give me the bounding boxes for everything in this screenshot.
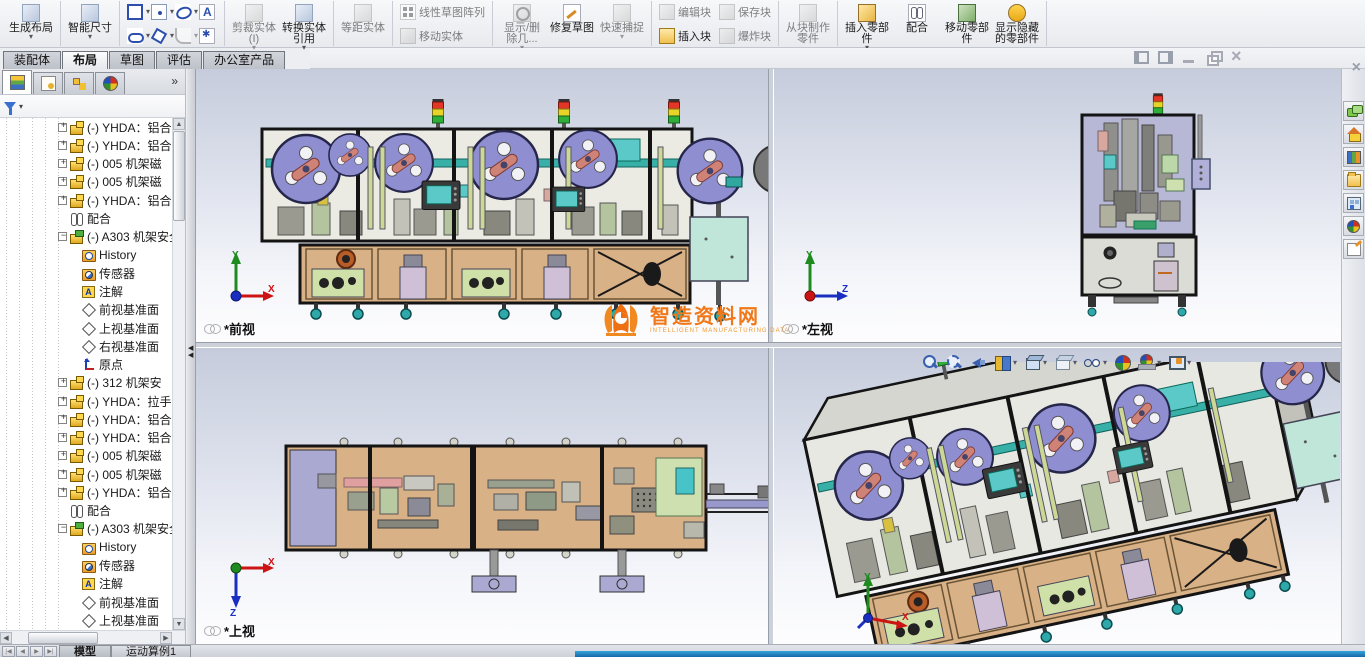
toolbar-group-make-part: 从块制作零件	[779, 1, 838, 46]
toolbar-group-dimension: 智能尺寸	[61, 1, 120, 46]
tree-item[interactable]: 传感器	[0, 264, 185, 282]
tree-item-icon	[70, 449, 84, 462]
toolbar-button[interactable]	[125, 3, 147, 21]
tree-item-label: 配合	[87, 502, 111, 519]
toolbar-button[interactable]: 从块制作零件	[784, 2, 832, 46]
toolbar-icon	[400, 4, 416, 20]
expand-toggle-icon[interactable]	[58, 524, 67, 533]
triad-front: Y X	[222, 248, 278, 310]
toolbar-icon	[199, 4, 215, 20]
toolbar-button[interactable]: 剪裁实体(I)	[230, 2, 278, 46]
scroll-right-icon[interactable]: ▶	[160, 632, 172, 644]
toolbar-icon	[1008, 4, 1026, 22]
tree-item-label: 配合	[87, 210, 111, 227]
tree-item-label: (-) 312 机架安	[87, 374, 162, 391]
collapse-arrows-icon[interactable]: ◀◀	[188, 345, 193, 359]
command-tab[interactable]: 布局	[62, 51, 108, 69]
tree-item-icon	[70, 522, 84, 535]
toolbar-group-sketch-entities	[120, 1, 225, 46]
toolbar-icon	[719, 28, 735, 44]
tree-item-icon	[82, 303, 96, 316]
tree-item-icon	[82, 541, 96, 554]
tree-filter-row: ▾	[0, 95, 185, 118]
tree-item[interactable]: 注解	[0, 282, 185, 300]
tree-item[interactable]: 配合	[0, 209, 185, 227]
tree-item-label: (-) A303 机架安全	[87, 228, 181, 245]
filter-caret-icon[interactable]: ▾	[19, 102, 23, 111]
toolbar-icon	[151, 4, 167, 20]
expand-toggle-icon[interactable]	[58, 415, 67, 424]
scroll-left-icon[interactable]: ◀	[0, 632, 12, 644]
tree-item[interactable]: 上视基准面	[0, 611, 185, 629]
tree-item[interactable]: (-) YHDA：拉手	[0, 392, 185, 410]
toolbar-button[interactable]: 快速捕捉	[598, 2, 646, 46]
feature-manager-panel: » ▾ (-) YHDA：铝合 (-) YHDA：铝合	[0, 69, 186, 644]
tree-item[interactable]: 上视基准面	[0, 319, 185, 337]
toolbar-button[interactable]: 修复草图	[548, 2, 596, 46]
apply-scene-icon	[1138, 354, 1155, 371]
tree-vertical-scrollbar[interactable]: ▲ ▼	[172, 118, 185, 630]
panel-splitter[interactable]: ◀◀	[187, 69, 196, 644]
command-tabs: 装配体布局草图评估办公室产品	[0, 48, 310, 69]
toolbar-button[interactable]: 移动零部件	[943, 2, 991, 46]
tree-item-label: (-) 005 机架磁	[87, 447, 162, 464]
viewport-isometric[interactable]: Y X	[774, 348, 1341, 644]
expand-toggle-icon[interactable]	[58, 141, 67, 150]
tree-item-label: (-) YHDA：铝合	[87, 429, 171, 446]
tree-item[interactable]: (-) 005 机架磁	[0, 465, 185, 483]
viewport-vertical-splitter[interactable]	[768, 69, 774, 644]
tree-item-label: (-) YHDA：铝合	[87, 484, 171, 501]
feature-tree: (-) YHDA：铝合 (-) YHDA：铝合 (-) 005 机架磁	[0, 118, 185, 630]
file-explorer-icon[interactable]	[1343, 170, 1364, 190]
toolbar-button[interactable]	[197, 3, 219, 21]
toolbar-icon	[295, 4, 313, 22]
toolbar-icon	[659, 28, 675, 44]
toolbar-icon	[908, 4, 926, 22]
expand-toggle-icon[interactable]	[58, 123, 67, 132]
toolbar-icon	[613, 4, 631, 22]
tree-item-icon	[70, 139, 84, 152]
toolbar-icon	[175, 4, 191, 20]
tree-item[interactable]: 注解	[0, 575, 185, 593]
pane-left-icon[interactable]	[1134, 51, 1149, 64]
solidworks-window: 生成布局 智能尺寸 剪裁实体(I)转换实体引用 等距实体 线性草图阵列移动实体 …	[0, 0, 1365, 657]
tree-item-label: (-) 005 机架磁	[87, 155, 162, 172]
tree-item-label: (-) YHDA：铝合	[87, 119, 171, 136]
toolbar-group-trim-convert: 剪裁实体(I)转换实体引用	[225, 1, 334, 46]
toolbar-group-relations-repair: 显示/删除几...修复草图快速捕捉	[493, 1, 652, 46]
motion-nav-button[interactable]: ▶	[30, 646, 43, 657]
tree-item[interactable]: (-) YHDA：铝合	[0, 191, 185, 209]
tree-item[interactable]: 右视基准面	[0, 337, 185, 355]
panel-tabs-overflow[interactable]: »	[171, 74, 178, 88]
svg-text:X: X	[268, 557, 275, 568]
tree-item-icon	[82, 248, 96, 261]
triad-left: Y Z	[796, 248, 852, 310]
tree-item-label: 注解	[99, 575, 123, 592]
tree-item-icon	[70, 230, 84, 243]
tree-item-icon	[82, 285, 96, 298]
panel-tabs	[0, 69, 185, 95]
tree-item-label: 注解	[99, 283, 123, 300]
tree-item-icon	[70, 175, 84, 188]
command-bar: 生成布局 智能尺寸 剪裁实体(I)转换实体引用 等距实体 线性草图阵列移动实体 …	[0, 0, 1365, 48]
displaymanager-icon[interactable]	[95, 72, 125, 94]
tree-item-icon	[82, 614, 96, 627]
toolbar-button[interactable]: 线性草图阵列	[398, 3, 487, 21]
bottom-tab[interactable]: 模型	[59, 645, 111, 657]
tree-item-label: 前视基准面	[99, 301, 159, 318]
scroll-down-icon[interactable]: ▼	[173, 618, 185, 630]
scrollbar-thumb[interactable]	[173, 131, 185, 221]
hide-show-items-icon	[1084, 354, 1101, 371]
tree-item[interactable]: (-) YHDA：铝合	[0, 429, 185, 447]
tree-item[interactable]: 前视基准面	[0, 593, 185, 611]
graphics-area: Y X *前视	[196, 69, 1341, 644]
tree-item-label: 上视基准面	[99, 320, 159, 337]
section-view-icon	[994, 354, 1011, 371]
command-tab[interactable]: 办公室产品	[203, 51, 285, 69]
display-style-icon	[1054, 354, 1071, 371]
machine-top-view	[258, 428, 768, 608]
tree-item[interactable]: (-) 005 机架磁	[0, 173, 185, 191]
design-library-icon[interactable]	[1343, 147, 1364, 167]
task-pane-icons	[1343, 101, 1364, 259]
toolbar-button[interactable]: 插入块	[657, 27, 713, 45]
toolbar-group-pattern-move: 线性草图阵列移动实体	[393, 1, 493, 46]
link-icon	[204, 324, 220, 333]
svg-text:Z: Z	[230, 608, 236, 616]
viewport-horizontal-splitter[interactable]	[196, 342, 1341, 348]
toolbar-icon	[354, 4, 372, 22]
toolbar-button[interactable]	[173, 3, 195, 21]
tree-item-icon	[70, 121, 84, 134]
svg-text:Y: Y	[232, 250, 239, 261]
tree-item[interactable]: (-) 312 机架安	[0, 374, 185, 392]
tree-item[interactable]: (-) A303 机架安全	[0, 520, 185, 538]
expand-toggle-icon[interactable]	[58, 159, 67, 168]
tree-item[interactable]: (-) YHDA：铝合	[0, 136, 185, 154]
pane-right-icon[interactable]	[1158, 51, 1173, 64]
graphics-top-strip	[310, 48, 1365, 69]
toolbar-icon	[175, 28, 191, 44]
tree-item-label: (-) YHDA：拉手	[87, 393, 171, 410]
model-motion-tabs: 模型运动算例1	[59, 645, 191, 657]
toolbar-button[interactable]	[197, 27, 219, 45]
view-palette-icon[interactable]	[1343, 193, 1364, 213]
tree-item-label: 上视基准面	[99, 612, 159, 629]
view-settings-icon	[1168, 354, 1185, 371]
window-controls	[1134, 51, 1245, 64]
tree-item-icon	[82, 322, 96, 335]
svg-text:X: X	[902, 612, 909, 623]
toolbar-button[interactable]	[173, 27, 195, 45]
edit-appearance-icon	[1114, 354, 1131, 371]
tree-item[interactable]: (-) 005 机架磁	[0, 155, 185, 173]
toolbar-button[interactable]: 智能尺寸	[66, 2, 114, 46]
zoom-area-icon	[946, 354, 963, 371]
tree-item-icon	[82, 267, 96, 280]
svg-text:X: X	[268, 284, 275, 295]
toolbar-group-assembly: 插入零部件配合移动零部件显示隐藏的零部件	[838, 1, 1047, 46]
tree-item[interactable]: 前视基准面	[0, 301, 185, 319]
viewport-left[interactable]: Y Z *左视	[774, 69, 1341, 342]
command-tab[interactable]: 草图	[109, 51, 155, 69]
toolbar-icon	[245, 4, 263, 22]
toolbar-icon	[400, 28, 416, 44]
toolbar-button[interactable]	[125, 27, 147, 45]
tree-item[interactable]: (-) YHDA：铝合	[0, 118, 185, 136]
tree-item[interactable]: (-) A303 机架安全	[0, 228, 185, 246]
tree-item-label: (-) YHDA：铝合	[87, 411, 171, 428]
svg-text:Z: Z	[842, 284, 848, 295]
task-pane-strip: ×	[1341, 69, 1365, 644]
toolbar-button[interactable]: 生成布局	[7, 2, 55, 46]
tree-item-icon	[82, 596, 96, 609]
toolbar-button[interactable]: 插入零部件	[843, 2, 891, 46]
tree-item-label: History	[99, 248, 136, 262]
tree-item-label: 传感器	[99, 265, 135, 282]
tree-item-label: 传感器	[99, 557, 135, 574]
machine-front-view	[254, 89, 768, 329]
toolbar-icon	[199, 28, 215, 44]
view-label-front: *前视	[204, 319, 255, 338]
tree-item[interactable]: (-) YHDA：铝合	[0, 410, 185, 428]
tree-item-icon	[82, 577, 96, 590]
link-icon	[204, 626, 220, 635]
filter-icon[interactable]	[4, 102, 16, 110]
tree-item-icon	[70, 468, 84, 481]
zoom-fit-icon	[922, 354, 939, 371]
tree-item-icon	[82, 340, 96, 353]
tree-item-icon	[82, 559, 96, 572]
scrollbar-thumb[interactable]	[28, 632, 98, 644]
toolbar-icon	[958, 4, 976, 22]
close-icon[interactable]	[1230, 51, 1245, 64]
machine-left-view	[1074, 93, 1309, 323]
motion-nav-button[interactable]: |◀	[2, 646, 15, 657]
tree-item-label: (-) 005 机架磁	[87, 173, 162, 190]
view-label-left: *左视	[782, 319, 833, 338]
triad-isometric: Y X	[852, 570, 916, 636]
tree-item-label: (-) 005 机架磁	[87, 466, 162, 483]
expand-toggle-icon[interactable]	[58, 488, 67, 497]
toolbar-group-layout: 生成布局	[2, 1, 61, 46]
tree-item[interactable]: (-) 005 机架磁	[0, 447, 185, 465]
expand-toggle-icon[interactable]	[58, 196, 67, 205]
tree-item-label: (-) YHDA：铝合	[87, 192, 171, 209]
toolbar-button[interactable]	[149, 3, 171, 21]
tree-item-label: (-) A303 机架安全	[87, 520, 181, 537]
view-orientation-icon	[1024, 354, 1041, 371]
previous-view-icon	[970, 354, 987, 371]
expand-toggle-icon[interactable]	[58, 397, 67, 406]
headsup-view-toolbar	[916, 352, 1197, 373]
expand-toggle-icon[interactable]	[58, 470, 67, 479]
view-label-top: *上视	[204, 621, 255, 640]
appearances-icon[interactable]	[1343, 216, 1364, 236]
tree-item-label: (-) YHDA：铝合	[87, 137, 171, 154]
restore-icon[interactable]	[1206, 51, 1221, 64]
tree-item-icon	[70, 212, 84, 225]
tree-item-icon	[70, 413, 84, 426]
scroll-up-icon[interactable]: ▲	[173, 118, 185, 130]
viewport-top[interactable]: Z X *上视	[196, 348, 768, 644]
toolbar-button[interactable]: 移动实体	[398, 27, 487, 45]
expand-toggle-icon[interactable]	[58, 232, 67, 241]
toolbar-group-offset: 等距实体	[334, 1, 393, 46]
toolbar-icon	[719, 4, 735, 20]
toolbar-icon	[858, 4, 876, 22]
configurationmanager-icon[interactable]	[64, 72, 94, 94]
toolbar-icon	[513, 4, 531, 22]
tree-item[interactable]: 原点	[0, 355, 185, 373]
toolbar-button[interactable]: 显示隐藏的零部件	[993, 2, 1041, 46]
link-icon	[782, 324, 798, 333]
toolbar-button[interactable]: 转换实体引用	[280, 2, 328, 46]
task-pane-close-icon[interactable]: ×	[1352, 59, 1361, 77]
custom-properties-icon[interactable]	[1343, 239, 1364, 259]
bottom-accent-bar	[575, 651, 1365, 657]
tree-item-icon	[82, 358, 96, 371]
tree-item-icon	[70, 504, 84, 517]
toolbar-button[interactable]: 显示/删除几...	[498, 2, 546, 46]
expand-toggle-icon[interactable]	[58, 451, 67, 460]
toolbar-icon	[563, 4, 581, 22]
tree-item-icon	[70, 194, 84, 207]
tree-item[interactable]: 配合	[0, 502, 185, 520]
tree-item[interactable]: 传感器	[0, 556, 185, 574]
toolbar-group-blocks: 编辑块保存块插入块爆炸块	[652, 1, 779, 46]
tree-item-label: 前视基准面	[99, 594, 159, 611]
tree-item[interactable]: History	[0, 538, 185, 556]
motion-nav-button[interactable]: ◀	[16, 646, 29, 657]
tree-item-icon	[70, 431, 84, 444]
expand-toggle-icon[interactable]	[58, 378, 67, 387]
command-tab[interactable]: 装配体	[3, 51, 61, 69]
tree-item-label: 右视基准面	[99, 338, 159, 355]
tree-item-label: History	[99, 540, 136, 554]
tree-item-icon	[70, 376, 84, 389]
featuremanager-icon[interactable]	[2, 70, 32, 94]
svg-text:Y: Y	[864, 572, 871, 583]
minimize-icon[interactable]	[1182, 51, 1197, 64]
toolbar-icon	[127, 4, 143, 20]
svg-text:Y: Y	[806, 250, 813, 261]
toolbar-icon	[127, 28, 143, 44]
toolbar-icon	[659, 4, 675, 20]
toolbar-button[interactable]	[149, 27, 171, 45]
toolbar-button[interactable]: 爆炸块	[717, 27, 773, 45]
toolbar-icon	[81, 4, 99, 22]
toolbar-button[interactable]: 保存块	[717, 3, 773, 21]
tree-item-icon	[70, 395, 84, 408]
toolbar-icon	[799, 4, 817, 22]
tree-item[interactable]: History	[0, 246, 185, 264]
toolbar-icon	[22, 4, 40, 22]
motion-nav-button[interactable]: ▶|	[44, 646, 57, 657]
bottom-tab[interactable]: 运动算例1	[111, 645, 191, 657]
expand-toggle-icon[interactable]	[58, 433, 67, 442]
home-icon[interactable]	[1343, 124, 1364, 144]
toolbar-button[interactable]: 等距实体	[339, 2, 387, 46]
tree-item[interactable]: (-) YHDA：铝合	[0, 483, 185, 501]
resources-icon[interactable]	[1343, 101, 1364, 121]
toolbar-icon	[151, 28, 167, 44]
tree-item-label: 原点	[99, 356, 123, 373]
motion-nav-buttons: |◀◀▶▶|	[0, 645, 59, 657]
tree-item-icon	[70, 157, 84, 170]
command-tab[interactable]: 评估	[156, 51, 202, 69]
toolbar-button[interactable]: 编辑块	[657, 3, 713, 21]
triad-top: Z X	[222, 554, 278, 616]
tree-item-icon	[70, 486, 84, 499]
propertymanager-icon[interactable]	[33, 72, 63, 94]
expand-toggle-icon[interactable]	[58, 177, 67, 186]
tree-horizontal-scrollbar[interactable]: ◀ ▶	[0, 630, 185, 644]
viewport-front[interactable]: Y X *前视	[196, 69, 768, 342]
toolbar-button[interactable]: 配合	[893, 2, 941, 46]
